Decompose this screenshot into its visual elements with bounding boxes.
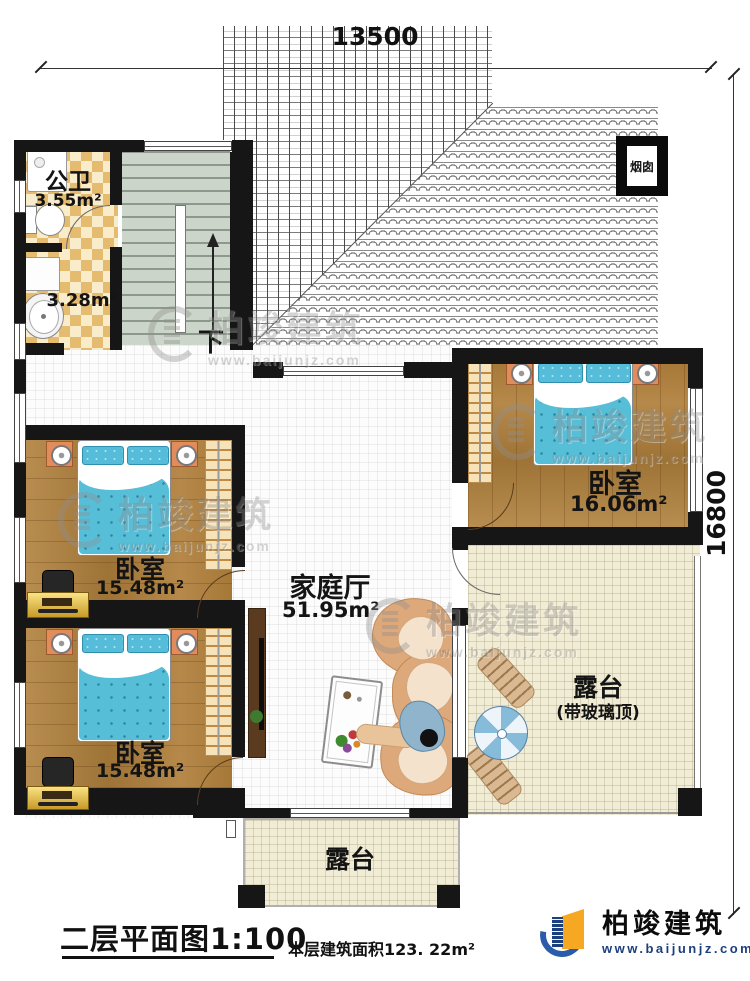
wall [452,608,468,625]
wall [14,463,26,517]
plan-title: 二层平面图1:100 [60,916,307,958]
wall [452,348,703,364]
sliding-door [452,625,466,758]
wall [232,140,253,152]
pillow [127,446,169,465]
dimension-tick [35,61,48,74]
nightstand [46,629,73,655]
terrace-right-bottom-rail [468,812,700,814]
desk [27,786,89,810]
wall [14,152,26,180]
desk [27,592,89,618]
wall [230,152,253,350]
floor-area-note: 本层建筑面积123. 22m² [288,936,475,960]
stairs-up-arrow-icon [212,245,214,330]
wall [253,362,283,378]
wardrobe [205,440,232,570]
bathroom-area: 3.55m² [30,191,106,211]
washroom-area: 3.28m² [42,290,122,311]
dimension-tick [728,68,741,81]
wall [688,512,703,545]
brand-name: 柏竣建筑 [602,911,750,938]
dimension-right-line [733,75,734,915]
door-terrace-right [452,548,500,595]
wall [688,348,703,388]
nightstand [46,441,73,467]
pillow [82,634,124,653]
chimney: 烟囱 [616,136,668,196]
terrace-glass-rail [694,556,701,790]
brand-logo-icon [540,905,596,961]
bedroom-right-area: 16.06m² [570,492,660,516]
terrace-bottom-label: 露台 [314,840,386,876]
washroom-cabinet [24,257,60,291]
family-hall-area: 51.95m² [282,598,378,622]
window [144,141,232,151]
wall [193,808,290,818]
wall [232,628,245,757]
wall [110,152,122,205]
dimension-top-line [40,68,712,69]
wall [14,360,26,393]
nightstand [171,441,198,467]
wall [14,243,62,252]
wall [232,440,245,567]
pillow [538,363,583,383]
window [14,180,26,213]
window [14,393,26,463]
stairs-down-label: 下 [194,322,228,359]
terrace-door-leaf [226,820,236,838]
wall [14,425,245,440]
brand-logo: 柏竣建筑 www.baijunjz.com [540,905,750,961]
title-underline [62,956,274,959]
terrace-post [678,788,702,816]
wardrobe [468,363,492,483]
wall [14,213,26,323]
wall [452,527,703,545]
window [14,323,26,360]
sliding-door [290,808,410,818]
person-head [420,729,438,747]
dimension-tick [705,61,718,74]
wall [410,808,457,818]
pillow [82,446,124,465]
terrace-post [238,885,265,908]
floor-plan-canvas: 烟囱 下 [0,0,750,981]
bedroom-bottom-area: 15.48m² [96,760,184,782]
pillow [127,634,169,653]
wall [14,140,144,152]
dimension-top: 13500 [330,22,420,51]
desk-chair [42,757,74,787]
coffee-table [321,675,383,769]
nightstand [171,629,198,655]
window [14,682,26,748]
window [14,517,26,583]
bedroom-mid-area: 15.48m² [96,577,184,599]
parasol [474,706,528,760]
terrace-right-note: (带玻璃顶) [538,698,658,723]
wall [452,364,468,483]
brand-url: www.baijunjz.com [602,941,750,956]
stairs-handrail [175,205,186,333]
wardrobe [205,628,232,756]
dimension-right: 16800 [702,477,726,557]
window [283,366,404,376]
stairs-up-arrowhead-icon [207,233,219,247]
plant [250,710,263,723]
terrace-post [437,885,460,908]
wall [14,583,26,682]
pillow [586,363,631,383]
chimney-label: 烟囱 [630,158,654,175]
